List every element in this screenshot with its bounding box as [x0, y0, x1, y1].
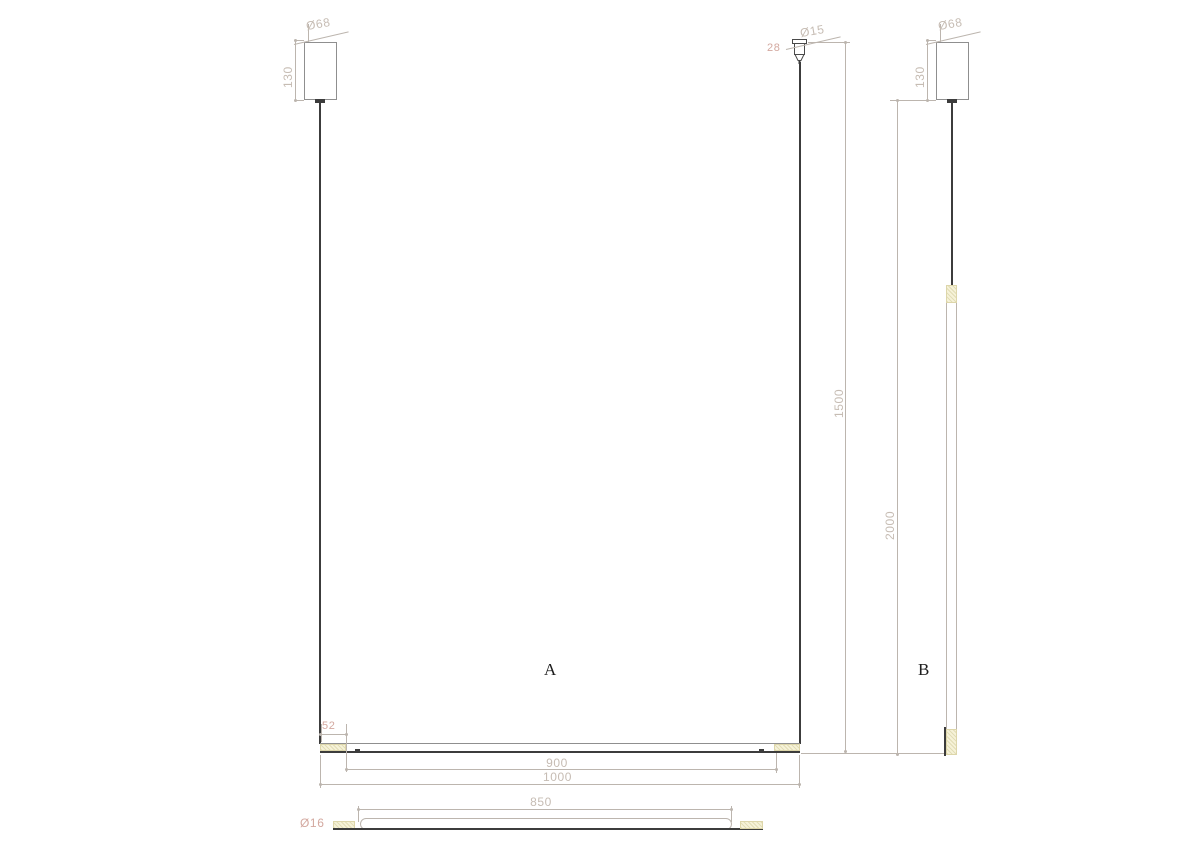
wire-grip-fitting: [787, 36, 813, 64]
dim-1500-label: 1500: [833, 382, 845, 418]
tube-diameter-label: Ø16: [300, 817, 324, 829]
detail-tube-underline: [333, 828, 763, 830]
grip-diameter-label: Ø15: [799, 23, 825, 39]
dim-52-ext-right: [346, 724, 347, 772]
canopy-b-height-dim-line: [927, 40, 928, 101]
dim-dot: [319, 733, 322, 736]
wire-a-right: [799, 62, 801, 744]
canopy-b-height-label: 130: [914, 56, 926, 88]
dim-dot: [896, 99, 899, 102]
canopy-b-height-tick-top: [928, 40, 936, 41]
dim-2000-line: [897, 100, 898, 755]
dim-dot: [319, 783, 322, 786]
canopy-b-diameter-label: Ø68: [937, 16, 963, 32]
dim-2000-label: 2000: [884, 500, 896, 540]
dim-dot: [730, 808, 733, 811]
dim-dot: [844, 41, 847, 44]
grip-height-label: 28: [767, 43, 780, 54]
dim-1000-line: [320, 784, 800, 785]
dim-dot: [775, 768, 778, 771]
lamp-bar-b-end-cap-bottom: [946, 729, 957, 755]
dim-900-label: 900: [532, 757, 582, 769]
lamp-bar-a: [320, 743, 800, 753]
canopy-a-height-dim-line: [295, 40, 296, 101]
wire-a-left: [319, 101, 321, 744]
canopy-a-outline: [304, 42, 337, 100]
lamp-bar-a-end-cap-left: [320, 744, 346, 751]
dim-dot: [345, 733, 348, 736]
lamp-bar-b-tube: [946, 303, 957, 730]
wire-attach-point-right: [759, 749, 764, 752]
dim-dot: [357, 808, 360, 811]
canopy-a-diameter-label: Ø68: [305, 16, 331, 32]
canopy-a-height-tick-top: [296, 40, 304, 41]
lamp-bar-b-bottom-edge: [944, 727, 946, 756]
lamp-bar-b-end-cap-top: [946, 285, 957, 303]
view-a-label: A: [544, 661, 556, 679]
lamp-dimension-drawing: Ø68 130 Ø15 28 1500 52 900: [0, 0, 1200, 848]
dim-850-line: [358, 809, 731, 810]
dim-dot: [896, 753, 899, 756]
view-b-label: B: [918, 661, 929, 679]
wire-b: [951, 101, 953, 286]
canopy-a-height-label: 130: [282, 56, 294, 88]
detail-end-cap-right: [740, 821, 763, 829]
bottom-extension-line: [801, 753, 956, 754]
dim-dot: [294, 39, 297, 42]
dim-52-line: [321, 734, 347, 735]
canopy-b-outline: [936, 42, 969, 100]
wire-attach-point-left: [355, 749, 360, 752]
canopy-a-height-tick-bottom: [296, 100, 304, 101]
dim-dot: [294, 99, 297, 102]
dim-1000-label: 1000: [530, 771, 585, 783]
dim-dot: [345, 768, 348, 771]
dim-52-label: 52: [322, 721, 335, 732]
dim-850-label: 850: [516, 796, 566, 808]
dim-dot: [926, 39, 929, 42]
lamp-bar-a-end-cap-right: [774, 744, 800, 751]
dim-dot: [798, 783, 801, 786]
